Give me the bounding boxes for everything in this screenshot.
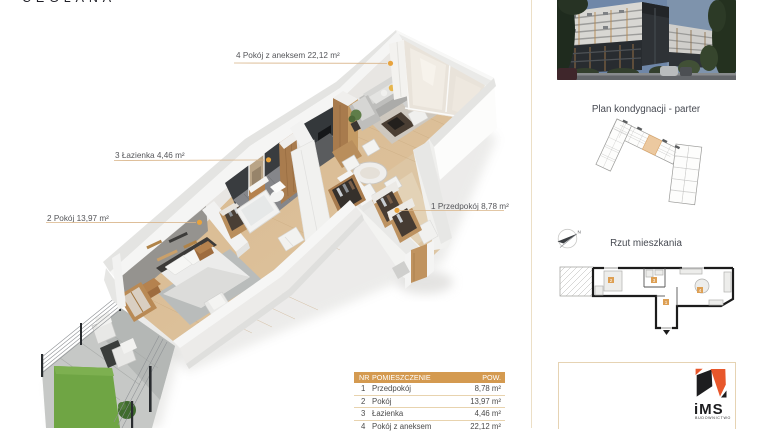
svg-text:2: 2 [610, 278, 613, 283]
svg-text:4: 4 [699, 288, 702, 293]
svg-text:3: 3 [653, 278, 656, 283]
svg-text:BUDOWNICTWO: BUDOWNICTWO [695, 416, 731, 420]
svg-text:3 Łazienka 4,46 m²: 3 Łazienka 4,46 m² [115, 151, 185, 160]
svg-text:2 Pokój 13,97 m²: 2 Pokój 13,97 m² [47, 214, 109, 223]
svg-text:1 Przedpokój 8,78 m²: 1 Przedpokój 8,78 m² [431, 202, 509, 211]
svg-text:1: 1 [665, 300, 668, 305]
svg-text:4 Pokój z aneksem 22,12 m²: 4 Pokój z aneksem 22,12 m² [236, 51, 340, 60]
svg-text:N: N [578, 230, 581, 235]
